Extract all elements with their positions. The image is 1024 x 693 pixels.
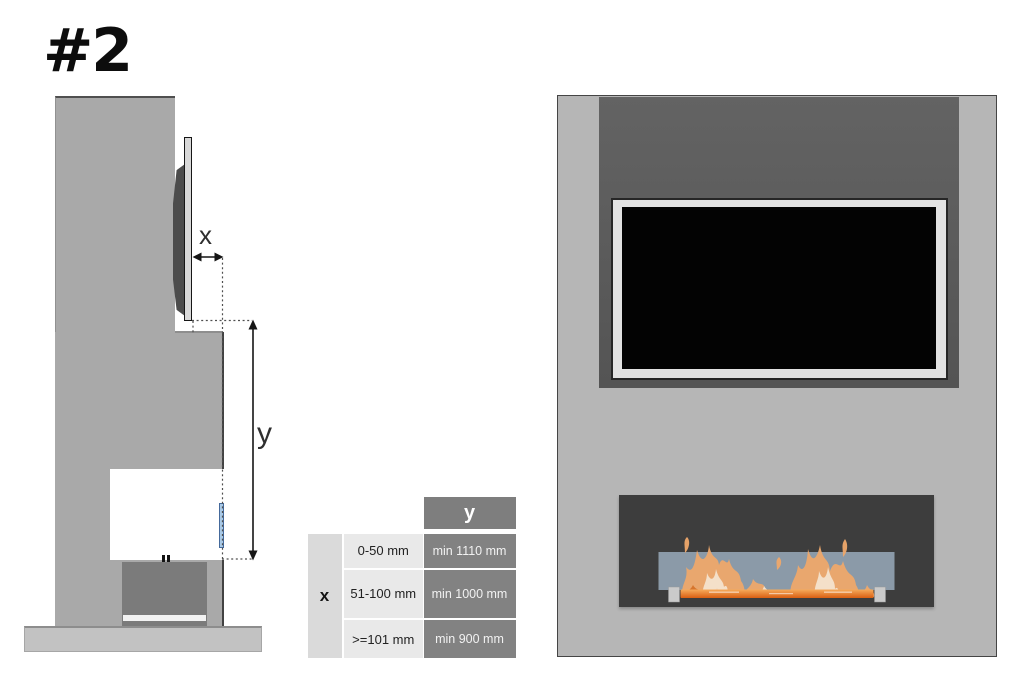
flame-graphic <box>619 495 934 607</box>
glass-panel-side <box>219 503 225 548</box>
table-cell-x-range: >=101 mm <box>344 620 424 658</box>
table-cell-y-min: min 1110 mm <box>424 534 516 568</box>
table-cell-x-range: 0-50 mm <box>344 534 424 568</box>
bracket-right <box>874 587 885 602</box>
table-cell-y-min: min 1000 mm <box>424 570 516 618</box>
arrowhead-right <box>215 253 224 262</box>
wall-step-edge <box>175 331 223 333</box>
bracket-left <box>668 587 679 602</box>
arrowhead-left <box>193 253 202 262</box>
arrowhead-down <box>249 551 258 561</box>
table-cell-x-range: 51-100 mm <box>344 570 424 618</box>
installation-diagram-page: #2 x y <box>0 0 1024 693</box>
fireplace-opening <box>619 495 934 607</box>
firebox-base-strip <box>123 615 206 621</box>
table-row-header-x: x <box>308 534 342 659</box>
burner-mark-left <box>162 555 166 562</box>
firebox-opening-side <box>110 469 224 560</box>
burner-mark-right <box>167 555 171 562</box>
page-title: #2 <box>43 16 131 86</box>
tv-panel-side <box>184 137 192 321</box>
table-header-y: y <box>424 497 516 529</box>
wall-upper-section <box>55 96 175 332</box>
table-cell-y-min: min 900 mm <box>424 620 516 658</box>
dimension-x-label: x <box>199 220 212 251</box>
arrowhead-up <box>249 320 258 330</box>
dimension-y-label: y <box>257 417 272 451</box>
base-plinth <box>24 626 262 652</box>
tv-screen <box>622 207 936 369</box>
